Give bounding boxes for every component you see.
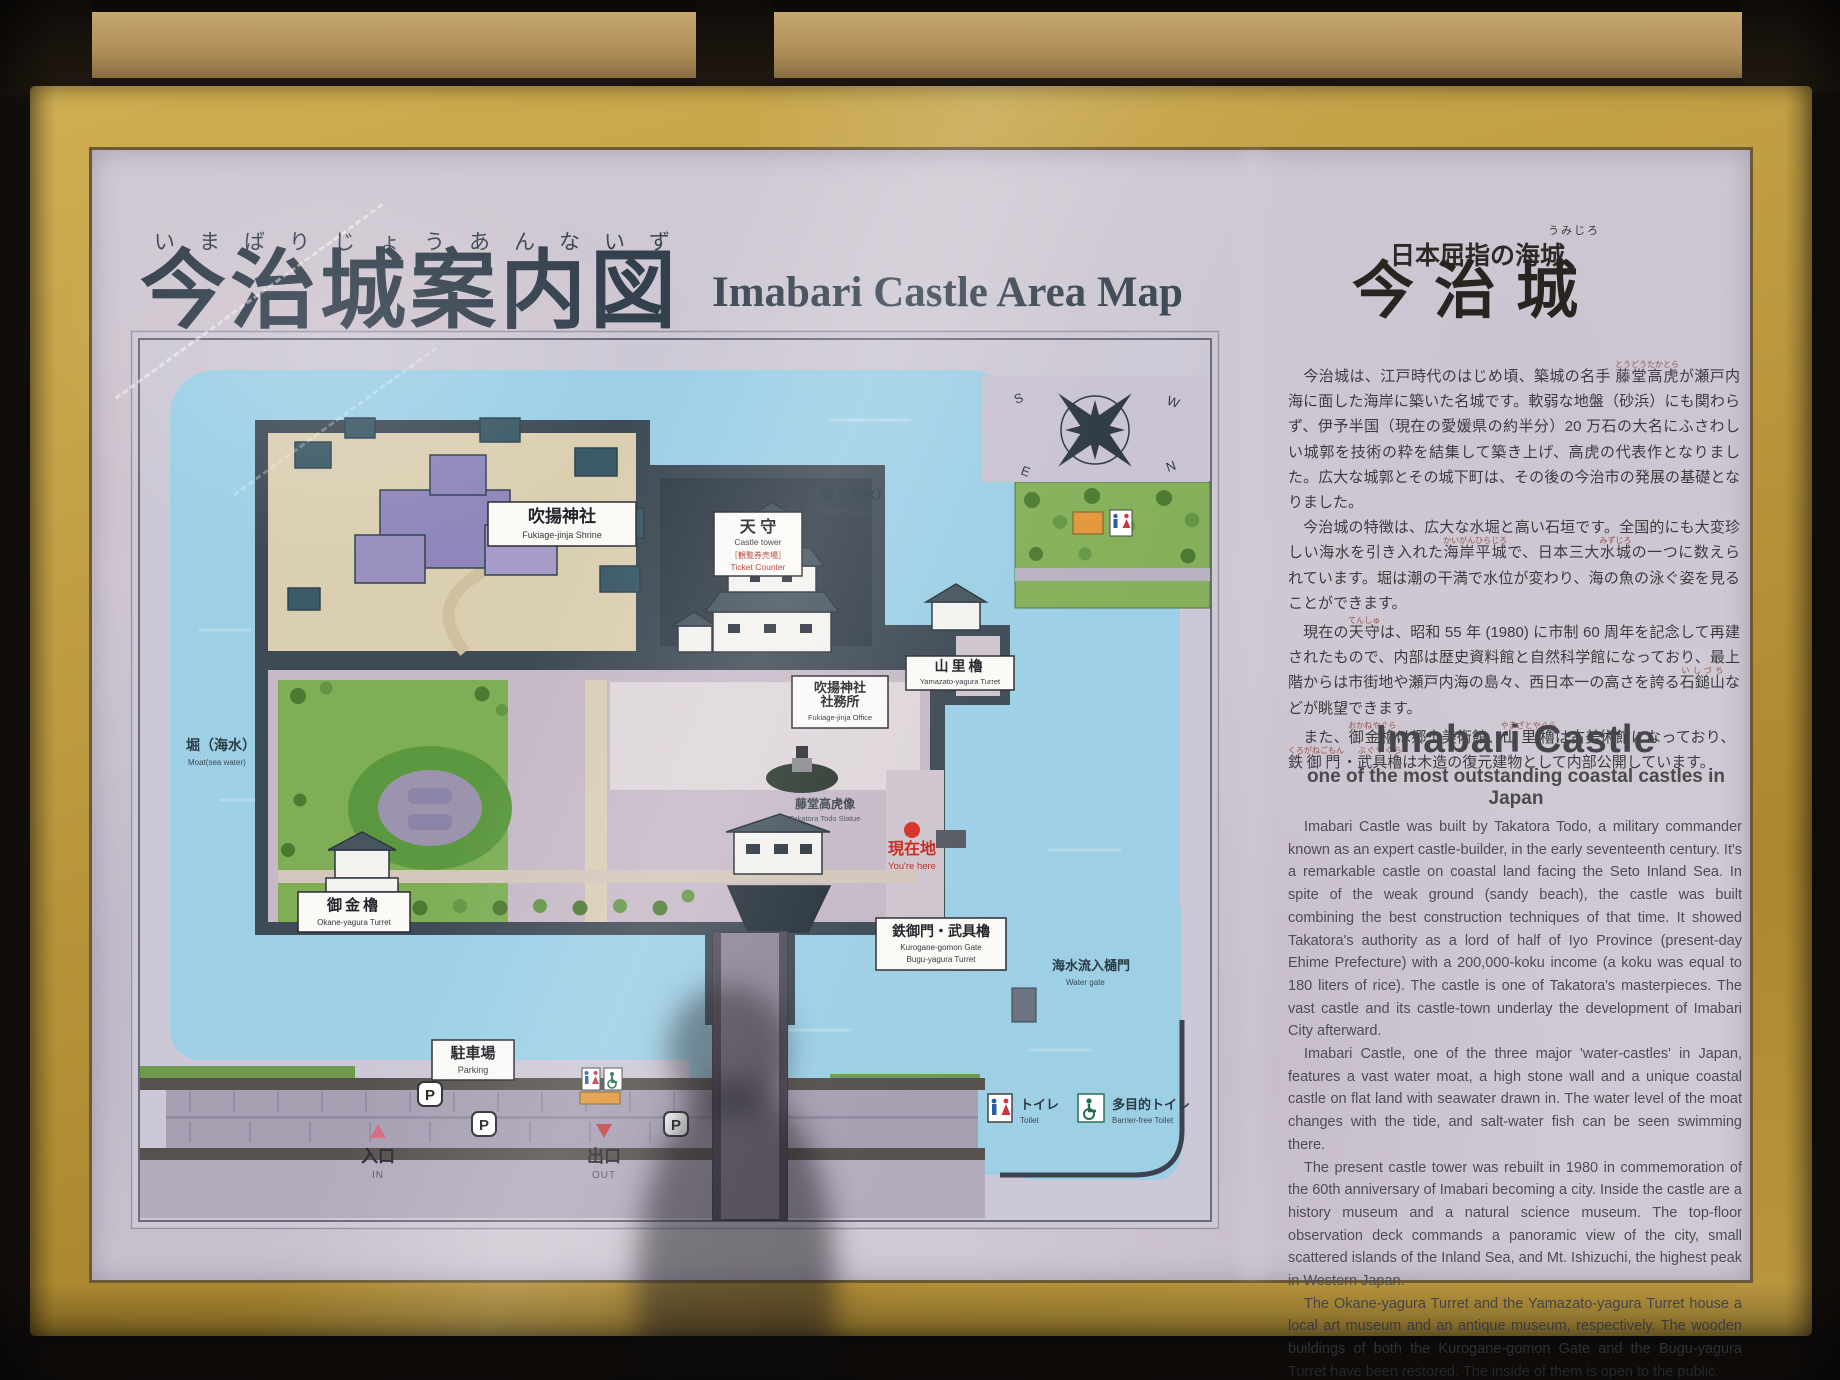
- toilet-icon: [582, 1068, 600, 1090]
- parking-building: [580, 1092, 620, 1104]
- svg-text:Fukiage-jinja Shrine: Fukiage-jinja Shrine: [522, 530, 602, 540]
- svg-text:堀（海水）: 堀（海水）: [820, 487, 890, 503]
- castle-name: 今治城: [1352, 260, 1598, 325]
- svg-text:駐車場: 駐車場: [450, 1044, 495, 1062]
- svg-text:Barrier-free Toilet: Barrier-free Toilet: [1112, 1116, 1174, 1125]
- wood-post-left: [0, 0, 92, 96]
- svg-text:Ticket Counter: Ticket Counter: [731, 562, 786, 572]
- svg-text:［観覧券売場］: ［観覧券売場］: [730, 550, 786, 560]
- gate-plaza-structure: [936, 830, 966, 848]
- kurogane-gate-illustration: [726, 814, 830, 932]
- svg-text:IN: IN: [372, 1170, 384, 1181]
- jp-paragraph: 現在の天守てんしゅは、昭和 55 年 (1980) に市制 60 周年を記念して…: [1288, 616, 1740, 721]
- svg-text:現在地: 現在地: [888, 839, 936, 858]
- svg-text:御金櫓: 御金櫓: [326, 896, 381, 914]
- svg-text:出口: 出口: [587, 1146, 621, 1166]
- label-castle-tower: 天 守 Castle tower ［観覧券売場］ Ticket Counter: [714, 512, 802, 576]
- oval-field-center: [378, 770, 482, 846]
- parking-p-marker: P: [472, 1112, 496, 1136]
- svg-text:Water gate: Water gate: [1066, 978, 1105, 987]
- parking-p-marker: P: [418, 1082, 442, 1106]
- svg-text:Okane-yagura Turret: Okane-yagura Turret: [317, 918, 392, 927]
- en-paragraph: The present castle tower was rebuilt in …: [1288, 1157, 1742, 1293]
- en-paragraph: The Okane-yagura Turret and the Yamazato…: [1288, 1293, 1742, 1380]
- photo-of-castle-map-sign: いまばりじょうあんないず 今治城案内図 Imabari Castle Area …: [0, 0, 1840, 1380]
- svg-text:You're here: You're here: [888, 861, 936, 872]
- label-statue: 藤堂高虎像 Takatora Todo Statue: [790, 796, 861, 823]
- svg-text:Bugu-yagura Turret: Bugu-yagura Turret: [907, 955, 977, 964]
- jp-paragraph: 今治城は、江戸時代のはじめ頃、築城の名手 藤堂高虎とうどうたかとらが瀬戸内海に面…: [1288, 360, 1740, 515]
- label-fukiage-shrine: 吹揚神社 Fukiage-jinja Shrine: [488, 502, 636, 546]
- svg-text:鉄御門・武具櫓: 鉄御門・武具櫓: [892, 923, 990, 939]
- en-paragraph: Imabari Castle was built by Takatora Tod…: [1288, 816, 1742, 1043]
- svg-text:藤堂高虎像: 藤堂高虎像: [794, 796, 856, 811]
- svg-text:堀（海水）: 堀（海水）: [186, 737, 256, 753]
- svg-text:OUT: OUT: [592, 1170, 616, 1181]
- svg-text:Moat (Sea water): Moat (Sea water): [822, 508, 884, 517]
- japanese-description: 今治城は、江戸時代のはじめ頃、築城の名手 藤堂高虎とうどうたかとらが瀬戸内海に面…: [1288, 360, 1740, 775]
- svg-text:Fukiage-jinja Office: Fukiage-jinja Office: [808, 713, 872, 722]
- label-yamazato-turret: 山里櫓 Yamazato-yagura Turret: [906, 656, 1014, 690]
- field-structure: [408, 814, 452, 830]
- svg-text:海水流入樋門: 海水流入樋門: [1052, 958, 1130, 973]
- label-moat-left: 堀（海水） Moat(sea water): [186, 737, 256, 767]
- bailey-path-v: [585, 680, 607, 922]
- svg-text:Castle tower: Castle tower: [734, 537, 781, 547]
- svg-text:トイレ: トイレ: [1020, 1097, 1059, 1112]
- toilet-icon: [1110, 510, 1132, 536]
- svg-text:Parking: Parking: [458, 1065, 489, 1075]
- legend-barrier-free-toilet: 多目的トイレ Barrier-free Toilet: [1078, 1094, 1190, 1125]
- compass-rose: S W E N: [982, 376, 1208, 482]
- svg-text:Kurogane-gomon Gate: Kurogane-gomon Gate: [900, 943, 982, 952]
- svg-text:入口: 入口: [361, 1147, 395, 1166]
- svg-text:Takatora Todo Statue: Takatora Todo Statue: [790, 814, 861, 823]
- north-east-park: [1015, 482, 1210, 608]
- label-shrine-office: 吹揚神社 社務所 Fukiage-jinja Office: [792, 676, 888, 728]
- svg-text:Yamazato-yagura Turret: Yamazato-yagura Turret: [920, 677, 1001, 686]
- label-parking: 駐車場 Parking: [432, 1040, 514, 1080]
- label-kurogane-gate: 鉄御門・武具櫓 Kurogane-gomon Gate Bugu-yagura …: [876, 918, 1006, 970]
- label-okane-turret: 御金櫓 Okane-yagura Turret: [298, 892, 410, 932]
- svg-text:Moat(sea water): Moat(sea water): [188, 758, 246, 767]
- wood-post-center: [696, 0, 774, 96]
- svg-text:Toilet: Toilet: [1020, 1116, 1039, 1125]
- svg-text:天 守: 天 守: [740, 517, 776, 536]
- park-building: [1073, 512, 1103, 534]
- svg-text:社務所: 社務所: [819, 694, 859, 709]
- jp-paragraph: 今治城の特徴は、広大な水堀と高い石垣です。全国的にも大変珍しい海水を引き入れた海…: [1288, 515, 1740, 616]
- water-gate-structure: [1012, 988, 1036, 1022]
- wood-beam: [0, 12, 1840, 78]
- parking-area: [140, 1066, 985, 1218]
- svg-text:吹揚神社: 吹揚神社: [528, 506, 596, 526]
- svg-text:吹揚神社: 吹揚神社: [814, 680, 866, 695]
- wood-post-right: [1742, 0, 1840, 92]
- en-paragraph: Imabari Castle, one of the three major '…: [1288, 1043, 1742, 1157]
- wheelchair-icon: [604, 1068, 622, 1090]
- svg-text:P: P: [425, 1087, 435, 1104]
- map-panel: S W E N: [130, 330, 1220, 1230]
- english-subheading: one of the most outstanding coastal cast…: [1290, 766, 1742, 810]
- field-structure: [408, 788, 452, 804]
- english-description: Imabari Castle was built by Takatora Tod…: [1288, 816, 1742, 1380]
- sign-title-en: Imabari Castle Area Map: [712, 268, 1183, 317]
- svg-text:多目的トイレ: 多目的トイレ: [1112, 1097, 1190, 1112]
- english-heading-block: Imabari Castle one of the most outstandi…: [1290, 718, 1742, 810]
- label-moat-top: 堀（海水） Moat (Sea water): [820, 487, 890, 517]
- svg-text:山里櫓: 山里櫓: [935, 658, 986, 674]
- svg-text:P: P: [479, 1117, 489, 1134]
- english-heading: Imabari Castle: [1290, 718, 1742, 762]
